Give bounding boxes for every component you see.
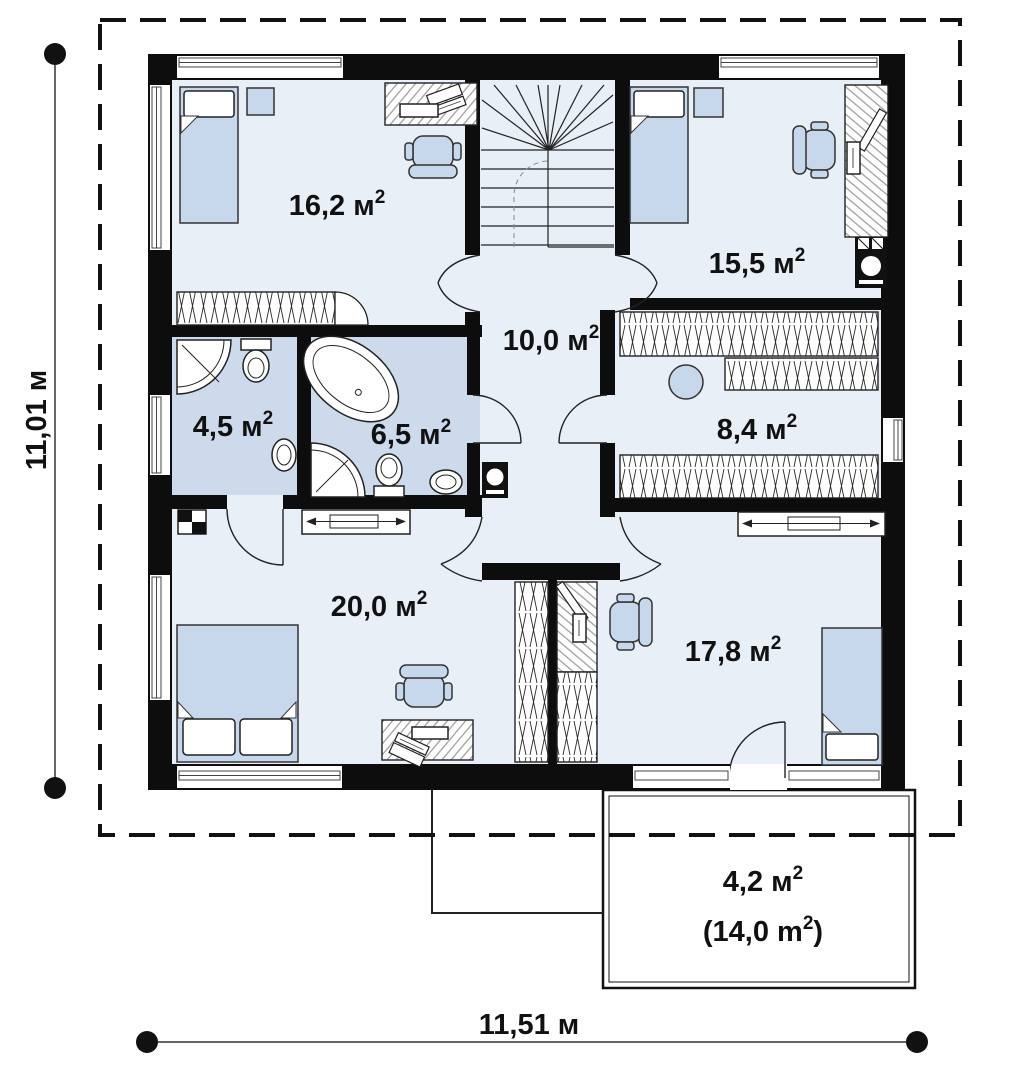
- stool-icon: [669, 365, 703, 399]
- sink-icon: [272, 439, 296, 471]
- room-label-16-2: 16,2 м2: [289, 187, 386, 222]
- dimension-dot-icon: [906, 1031, 928, 1053]
- boiler-icon: [855, 234, 887, 288]
- vertical-dimension: 11,01 м: [21, 43, 66, 799]
- window-icon: [719, 56, 879, 78]
- toilet-icon: [241, 339, 271, 382]
- toilet-icon: [374, 454, 404, 497]
- washing-machine-icon: [482, 462, 508, 498]
- office-chair-icon: [610, 594, 652, 650]
- dimension-dot-icon: [136, 1031, 158, 1053]
- office-chair-icon: [405, 136, 461, 178]
- office-chair-icon: [396, 665, 452, 707]
- pillow-icon: [183, 719, 235, 755]
- pillow-icon: [240, 719, 292, 755]
- window-icon: [150, 85, 170, 250]
- window-icon: [177, 766, 342, 788]
- double-bed-icon: [177, 625, 298, 762]
- horizontal-dimension-label: 11,51 м: [479, 1009, 579, 1041]
- floor-plan: 11,01 м 11,51 м: [0, 0, 1024, 1085]
- nightstand-icon: [694, 88, 723, 117]
- window-icon: [883, 418, 903, 462]
- room-label-17-8: 17,8 м2: [685, 633, 782, 668]
- window-icon: [150, 575, 170, 700]
- wardrobe-icon: [557, 672, 597, 762]
- dresser-icon: [738, 512, 885, 536]
- bed-icon: [822, 628, 882, 765]
- room-label-10-0: 10,0 м2: [503, 322, 600, 357]
- vertical-dimension-label: 11,01 м: [21, 370, 53, 470]
- sink-icon: [430, 470, 462, 494]
- horizontal-dimension: 11,51 м: [136, 1009, 928, 1053]
- balcony-label-1: 4,2 м2: [723, 863, 803, 898]
- room-label-20-0: 20,0 м2: [331, 588, 428, 623]
- bed-icon: [630, 87, 688, 223]
- dimension-dot-icon: [44, 777, 66, 799]
- desk-icon: [382, 720, 473, 767]
- room-label-15-5: 15,5 м2: [709, 245, 806, 280]
- window-icon: [177, 56, 343, 78]
- window-icon: [150, 395, 170, 475]
- pillow-icon: [826, 734, 878, 760]
- desk-icon: [556, 582, 597, 672]
- wardrobe-icon: [515, 582, 548, 762]
- pillow-icon: [184, 91, 234, 117]
- dresser-icon: [302, 510, 410, 534]
- room-label-6-5: 6,5 м2: [371, 416, 451, 451]
- chimney-icon: [178, 510, 206, 534]
- desk-icon: [845, 85, 888, 237]
- dimension-dot-icon: [44, 43, 66, 65]
- nightstand-icon: [247, 88, 274, 115]
- pillow-icon: [634, 91, 684, 117]
- wardrobe-icon: [177, 292, 368, 325]
- office-chair-icon: [793, 122, 835, 178]
- room-label-4-5: 4,5 м2: [193, 408, 273, 443]
- room-label-8-4: 8,4 м2: [717, 411, 797, 446]
- porch-outline-icon: [432, 790, 603, 913]
- bed-icon: [180, 87, 238, 223]
- desk-icon: [385, 83, 477, 125]
